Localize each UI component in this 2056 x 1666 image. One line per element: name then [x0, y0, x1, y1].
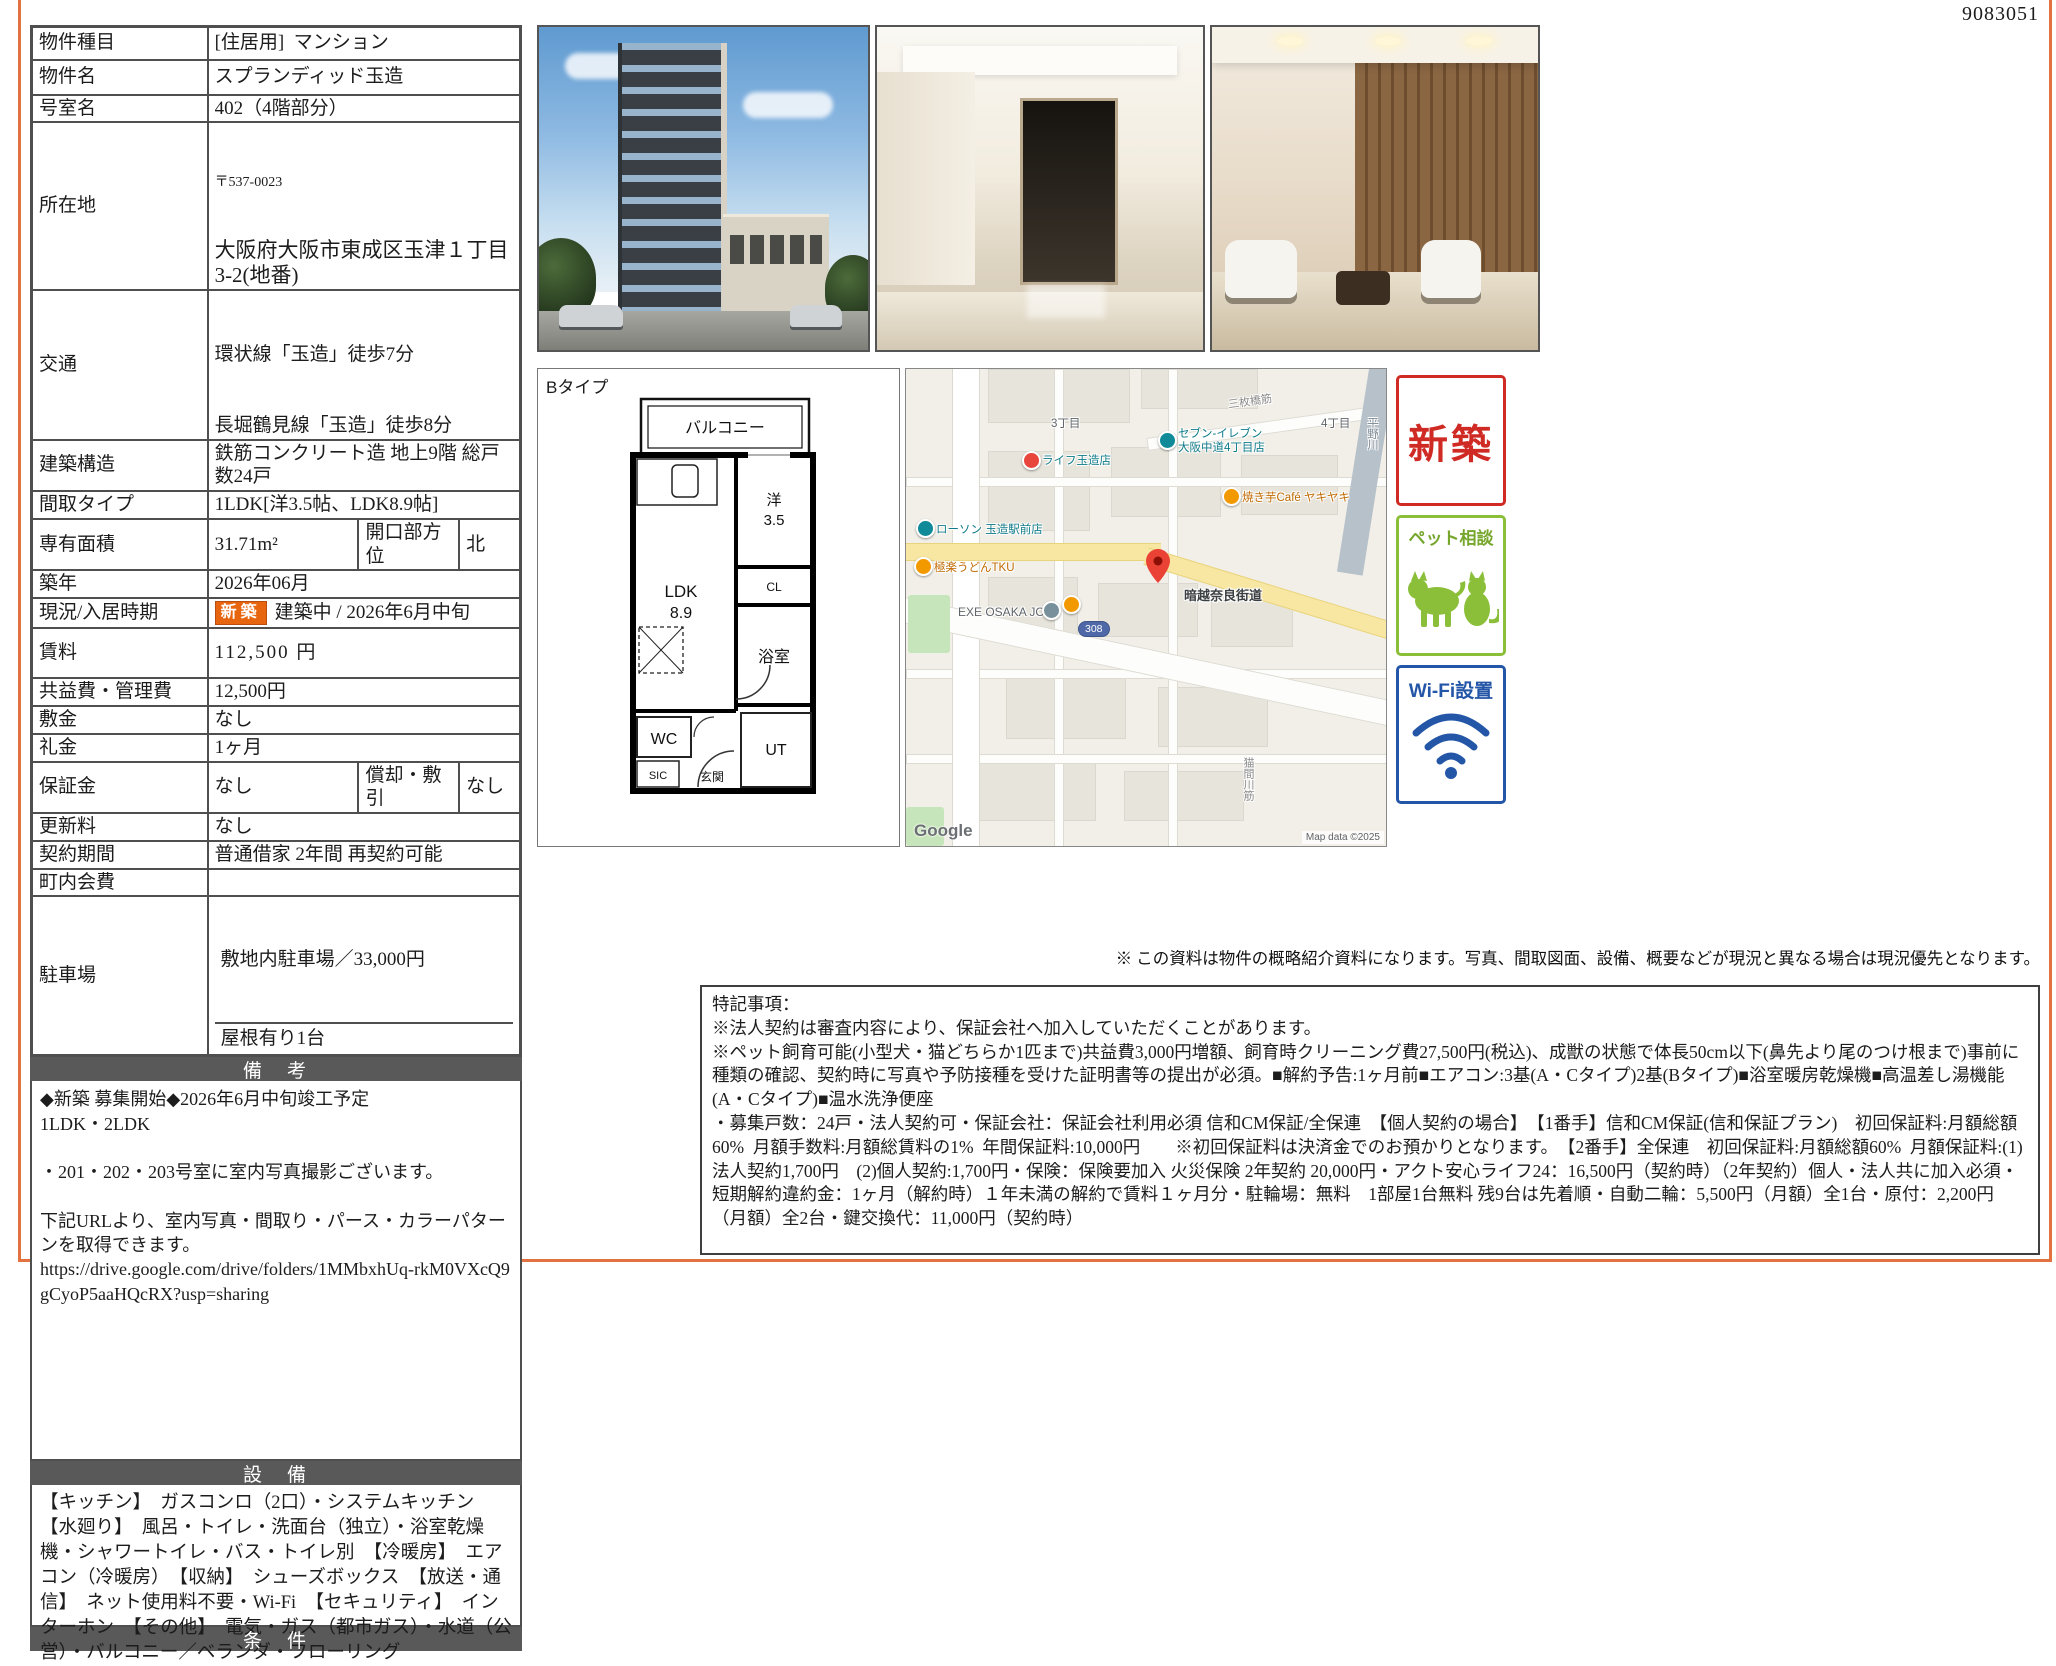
parking-line-2: 屋根有り1台: [215, 1022, 513, 1053]
equipment-header: 設 備: [30, 1461, 522, 1485]
row-value: 鉄筋コンクリート造 地上9階 総戸数24戸: [208, 440, 521, 492]
ut-label: UT: [765, 742, 787, 759]
table-row: 契約期間 普通借家 2年間 再契約可能: [32, 841, 521, 869]
access-line-2: 長堀鶴見線「玉造」徒歩8分: [215, 414, 513, 438]
badge-new-label: 新築: [1408, 412, 1494, 470]
row-value: 普通借家 2年間 再契約可能: [208, 841, 521, 869]
udon-poi-icon: [914, 557, 933, 576]
table-row: 間取タイプ 1LDK[洋3.5帖、LDK8.9帖]: [32, 491, 521, 519]
lobby-table: [1336, 271, 1390, 305]
row-label: 物件種目: [32, 27, 208, 60]
status-text: 建築中 / 2026年6月中旬: [275, 602, 470, 623]
table-row: 所在地 〒537-0023 大阪府大阪市東成区玉津１丁目3-2(地番): [32, 122, 521, 290]
building-tower: [618, 43, 727, 311]
table-row: 専有面積 31.71m² 開口部方位 北: [32, 519, 521, 571]
hirano-river: [1337, 368, 1387, 576]
park-green: [908, 595, 950, 653]
table-row: 礼金 1ヶ月: [32, 734, 521, 762]
ldk-label: LDK: [664, 582, 698, 601]
exe-poi-icon: [1042, 601, 1061, 620]
table-row: 物件名 スプランディッド玉造: [32, 60, 521, 95]
floor-area: 31.71m²: [208, 519, 359, 571]
seven-eleven-label-2: 大阪中道4丁目店: [1178, 439, 1265, 455]
badge-wifi-label: Wi-Fi設置: [1399, 676, 1503, 703]
photo-lobby: [1210, 25, 1540, 352]
entrance-label: 玄関: [700, 769, 724, 784]
badge-pet-consultation: ペット相談: [1396, 515, 1506, 656]
amortization-value: なし: [459, 762, 520, 814]
balcony-label: バルコニー: [685, 420, 765, 437]
table-row: 共益費・管理費 12,500円: [32, 678, 521, 706]
row-label: 契約期間: [32, 841, 208, 869]
row-label: 交通: [32, 290, 208, 440]
row-value: [住居用] マンション: [208, 27, 521, 60]
table-row: 築年 2026年06月: [32, 570, 521, 598]
row-label: 礼金: [32, 734, 208, 762]
udon-restaurant-label: 極楽うどんTKU: [934, 559, 1015, 575]
photo-building-exterior: [537, 25, 870, 352]
entrance-door: [1020, 98, 1117, 285]
lobby-chair: [1225, 240, 1297, 298]
coffee-poi-icon: [1062, 595, 1081, 614]
table-row: 賃料 112,500 円: [32, 628, 521, 678]
seven-eleven-poi-icon: [1158, 431, 1177, 450]
map-block: [1098, 583, 1198, 637]
row-label: 所在地: [32, 122, 208, 290]
table-row: 物件種目 [住居用] マンション: [32, 27, 521, 60]
life-supermarket-poi-icon: [1022, 451, 1041, 470]
location-map: 三枚橋筋 3丁目 4丁目 セブン-イレブン 大阪中道4丁目店 ライフ玉造店 焼き…: [905, 368, 1387, 847]
ceiling-light: [1466, 37, 1492, 45]
route-308-shield: 308: [1078, 621, 1110, 637]
row-label: 間取タイプ: [32, 491, 208, 519]
lawson-label: ローソン 玉造駅前店: [936, 521, 1043, 537]
row-label: 敷金: [32, 706, 208, 734]
row-label: 保証金: [32, 762, 208, 814]
floor-reflection: [1027, 285, 1105, 317]
side-wall: [877, 72, 975, 285]
table-row: 現況/入居時期 新築建築中 / 2026年6月中旬: [32, 598, 521, 628]
table-row: 保証金 なし 償却・敷引 なし: [32, 762, 521, 814]
photo-entrance: [875, 25, 1205, 352]
map-copyright: Map data ©2025: [1302, 831, 1384, 844]
life-supermarket-label: ライフ玉造店: [1042, 452, 1111, 468]
row-label-2: 償却・敷引: [358, 762, 459, 814]
hirano-river-label: 平野川: [1364, 417, 1380, 450]
postal-code: 〒537-0023: [215, 175, 513, 190]
access-cell: 環状線「玉造」徒歩7分 長堀鶴見線「玉造」徒歩8分: [208, 290, 521, 440]
floor-plan-drawing: バルコニー LDK 8.9 洋 3.5 CL 浴室 WC SIC U: [538, 369, 899, 846]
row-label: 物件名: [32, 60, 208, 95]
cafe-label: 焼き芋Café ヤキヤキ: [1242, 489, 1350, 505]
access-line-1: 環状線「玉造」徒歩7分: [215, 343, 513, 367]
row-label: 更新料: [32, 813, 208, 841]
row-value: 1ヶ月: [208, 734, 521, 762]
building-low-wing: [723, 214, 828, 314]
table-row: 建築構造 鉄筋コンクリート造 地上9階 総戸数24戸: [32, 440, 521, 492]
ldk-size: 8.9: [670, 605, 692, 622]
bath-label: 浴室: [758, 648, 790, 666]
table-row: 号室名 402（4階部分）: [32, 95, 521, 123]
remarks-header: 備 考: [30, 1057, 522, 1081]
row-value: 2026年06月: [208, 570, 521, 598]
table-row: 町内会費: [32, 869, 521, 897]
car: [790, 305, 842, 327]
map-block: [1124, 771, 1244, 821]
property-detail-panel: 物件種目 [住居用] マンション 物件名 スプランディッド玉造 号室名 402（…: [30, 25, 522, 1651]
property-table: 物件種目 [住居用] マンション 物件名 スプランディッド玉造 号室名 402（…: [30, 25, 522, 1057]
lobby-ceiling: [1212, 27, 1538, 63]
row-label: 号室名: [32, 95, 208, 123]
property-name: スプランディッド玉造: [208, 60, 521, 95]
kaido-road-label: 暗越奈良街道: [1184, 585, 1262, 604]
map-block: [966, 761, 1096, 821]
badge-new-construction: 新築: [1396, 375, 1506, 506]
lawson-poi-icon: [916, 519, 935, 538]
ceiling-light: [1277, 37, 1303, 45]
car: [559, 305, 623, 327]
lobby-chair: [1421, 240, 1481, 298]
western-room-label: 洋: [766, 492, 781, 509]
row-value: 12,500円: [208, 678, 521, 706]
table-row: 更新料 なし: [32, 813, 521, 841]
ceiling-light: [903, 46, 1177, 75]
row-label: 専有面積: [32, 519, 208, 571]
wifi-icon: [1408, 703, 1494, 781]
table-row: 駐車場 敷地内駐車場／33,000円 屋根有り1台: [32, 896, 521, 1056]
row-label: 駐車場: [32, 896, 208, 1056]
row-label: 共益費・管理費: [32, 678, 208, 706]
parking-line-1: 敷地内駐車場／33,000円: [215, 946, 513, 975]
row-label: 築年: [32, 570, 208, 598]
row-value: なし: [208, 706, 521, 734]
status-cell: 新築建築中 / 2026年6月中旬: [208, 598, 521, 628]
google-logo: Google: [914, 821, 973, 841]
rent-amount: 112,500 円: [208, 628, 521, 678]
row-label: 建築構造: [32, 440, 208, 492]
row-value: なし: [208, 813, 521, 841]
disclaimer-text: ※ この資料は物件の概略紹介資料になります。写真、間取図面、設備、概要などが現況…: [540, 945, 2040, 969]
equipment-text: 【キッチン】 ガスコンロ（2口）・システムキッチン 【水廻り】 風呂・トイレ・洗…: [30, 1485, 522, 1627]
wc-label: WC: [651, 731, 678, 748]
cafe-poi-icon: [1222, 487, 1241, 506]
table-row: 敷金 なし: [32, 706, 521, 734]
deposit-value: なし: [208, 762, 359, 814]
row-label: 町内会費: [32, 869, 208, 897]
row-value: 402（4階部分）: [208, 95, 521, 123]
closet-label: CL: [766, 580, 782, 594]
dog-cat-icon: [1403, 549, 1499, 641]
row-label: 現況/入居時期: [32, 598, 208, 628]
district-label-4chome: 4丁目: [1321, 415, 1350, 431]
floor-plan-panel: Bタイプ バルコニー LDK 8.9 洋 3.5 CL: [537, 368, 900, 847]
sic-label: SIC: [649, 770, 667, 782]
row-value: [208, 869, 521, 897]
district-label-3chome: 3丁目: [1051, 415, 1080, 431]
row-label: 賃料: [32, 628, 208, 678]
badge-pet-label: ペット相談: [1399, 524, 1503, 549]
parking-cell: 敷地内駐車場／33,000円 屋根有り1台: [208, 896, 521, 1056]
document-number: 9083051: [1962, 3, 2039, 26]
table-row: 交通 環状線「玉造」徒歩7分 長堀鶴見線「玉造」徒歩8分: [32, 290, 521, 440]
special-notes-box: 特記事項： ※法人契約は審査内容により、保証会社へ加入していただくことがあります…: [700, 985, 2040, 1255]
badge-wifi: Wi-Fi設置: [1396, 665, 1506, 804]
address-cell: 〒537-0023 大阪府大阪市東成区玉津１丁目3-2(地番): [208, 122, 521, 290]
remarks-text: ◆新築 募集開始◆2026年6月中旬竣工予定 1LDK・2LDK ・201・20…: [30, 1081, 522, 1461]
row-label-2: 開口部方位: [358, 519, 459, 571]
map-marker-icon: [1146, 549, 1170, 583]
western-room-size: 3.5: [764, 512, 785, 529]
map-block: [1006, 669, 1126, 739]
row-value: 1LDK[洋3.5帖、LDK8.9帖]: [208, 491, 521, 519]
address: 大阪府大阪市東成区玉津１丁目3-2(地番): [215, 238, 513, 288]
exe-osaka-jo-label: EXE OSAKA JO: [958, 605, 1045, 619]
nekoma-road-label: 猫間川筋: [1240, 757, 1256, 801]
cloud: [743, 92, 833, 118]
facing-direction: 北: [459, 519, 520, 571]
ceiling-light: [1375, 37, 1401, 45]
new-construction-stamp: 新築: [215, 601, 267, 625]
